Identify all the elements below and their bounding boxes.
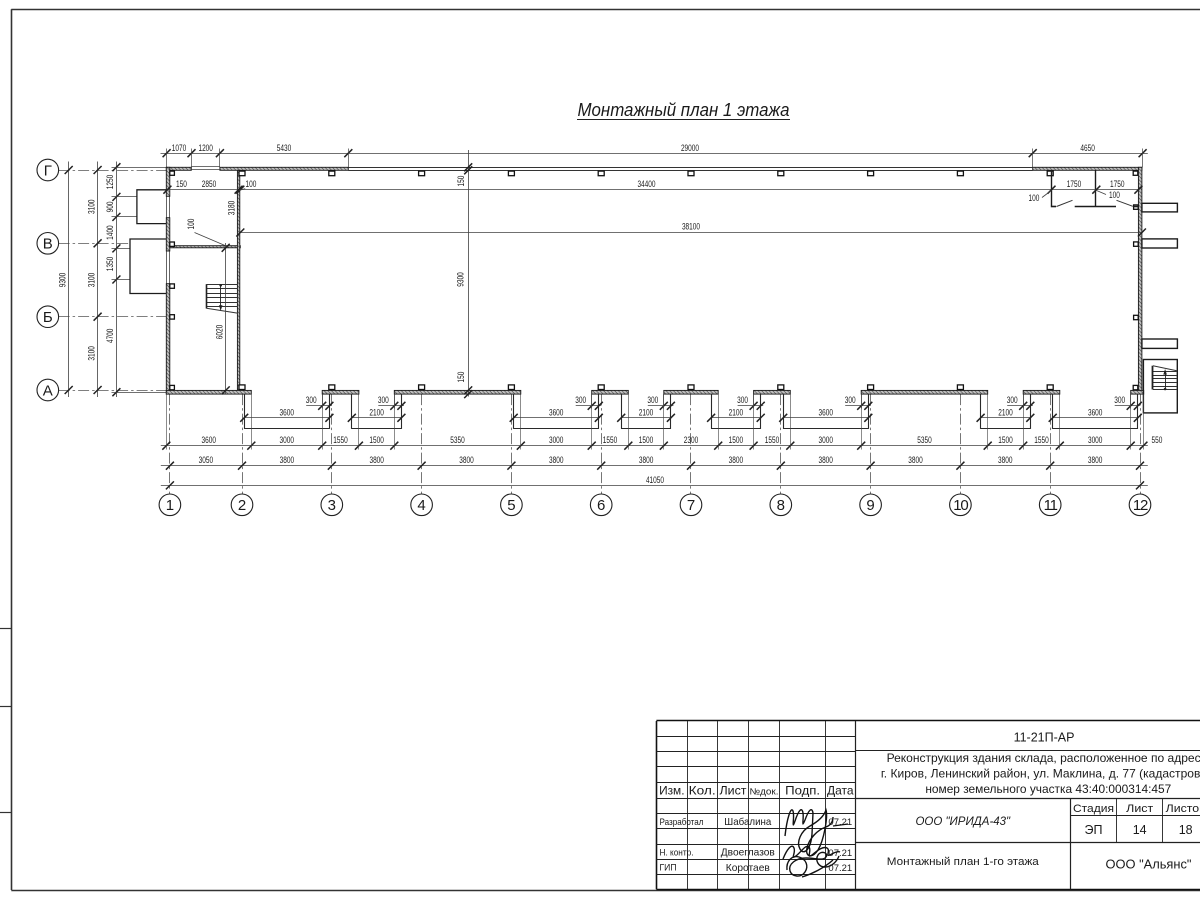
svg-text:3600: 3600 [1088, 407, 1103, 417]
svg-text:2: 2 [238, 497, 246, 514]
svg-text:29000: 29000 [681, 143, 699, 153]
svg-text:2300: 2300 [684, 435, 699, 445]
svg-text:5350: 5350 [917, 435, 932, 445]
svg-text:г. Киров, Ленинский район, ул.: г. Киров, Ленинский район, ул. Маклина, … [881, 767, 1200, 781]
svg-text:2100: 2100 [369, 407, 384, 417]
svg-text:11: 11 [1044, 497, 1058, 514]
svg-text:300: 300 [378, 395, 389, 405]
svg-text:3: 3 [328, 497, 336, 514]
svg-text:3600: 3600 [549, 407, 564, 417]
svg-text:Н. контр.: Н. контр. [660, 847, 694, 857]
svg-text:Лист: Лист [720, 783, 748, 797]
svg-text:2850: 2850 [202, 179, 217, 189]
svg-text:Подп.: Подп. [785, 783, 820, 797]
svg-text:4700: 4700 [105, 329, 115, 344]
svg-text:3800: 3800 [459, 455, 474, 465]
svg-text:1750: 1750 [1067, 179, 1082, 189]
svg-text:В: В [43, 236, 53, 253]
svg-text:Кол.: Кол. [689, 783, 716, 797]
svg-text:3600: 3600 [819, 407, 834, 417]
svg-text:Двоеглазов: Двоеглазов [721, 847, 775, 859]
svg-text:1350: 1350 [105, 257, 115, 272]
svg-text:300: 300 [845, 395, 856, 405]
svg-text:ГИП: ГИП [660, 863, 677, 873]
svg-text:Лист: Лист [1126, 803, 1153, 815]
svg-text:41050: 41050 [646, 475, 664, 485]
svg-text:1500: 1500 [729, 435, 744, 445]
svg-text:300: 300 [647, 395, 658, 405]
svg-text:12: 12 [1133, 497, 1148, 514]
svg-text:3050: 3050 [199, 455, 214, 465]
svg-text:100: 100 [186, 219, 196, 230]
svg-text:3800: 3800 [908, 455, 923, 465]
svg-text:1500: 1500 [369, 435, 384, 445]
svg-text:3800: 3800 [639, 455, 654, 465]
svg-text:Коротаев: Коротаев [726, 862, 770, 874]
svg-text:150: 150 [176, 179, 187, 189]
svg-text:100: 100 [1109, 190, 1120, 200]
svg-text:1500: 1500 [639, 435, 654, 445]
svg-text:1550: 1550 [765, 435, 780, 445]
svg-text:Стадия: Стадия [1073, 803, 1114, 815]
svg-text:3800: 3800 [280, 455, 295, 465]
svg-text:4650: 4650 [1080, 143, 1095, 153]
svg-text:5: 5 [507, 497, 515, 514]
svg-text:Монтажный план 1-го этажа: Монтажный план 1-го этажа [887, 856, 1040, 868]
svg-text:300: 300 [1114, 395, 1125, 405]
svg-text:300: 300 [306, 395, 317, 405]
svg-text:10: 10 [953, 497, 968, 514]
svg-text:18: 18 [1179, 823, 1193, 837]
svg-text:1: 1 [166, 497, 174, 514]
svg-text:6: 6 [597, 497, 605, 514]
svg-text:2100: 2100 [729, 407, 744, 417]
svg-text:1550: 1550 [603, 435, 618, 445]
svg-text:9300: 9300 [58, 273, 68, 288]
svg-text:2100: 2100 [998, 407, 1013, 417]
svg-text:3000: 3000 [1088, 435, 1103, 445]
svg-text:5350: 5350 [450, 435, 465, 445]
svg-text:3100: 3100 [86, 346, 96, 361]
svg-text:3600: 3600 [202, 435, 217, 445]
svg-text:34400: 34400 [637, 179, 655, 189]
svg-text:900: 900 [105, 201, 115, 212]
svg-text:Листов: Листов [1166, 803, 1200, 815]
svg-text:9: 9 [866, 497, 874, 514]
svg-text:1070: 1070 [172, 143, 187, 153]
svg-text:100: 100 [246, 179, 257, 189]
svg-text:3180: 3180 [227, 201, 237, 216]
svg-text:ООО "ИРИДА-43": ООО "ИРИДА-43" [915, 816, 1011, 828]
svg-text:Монтажный план 1 этажа: Монтажный план 1 этажа [578, 100, 790, 120]
svg-text:8: 8 [777, 497, 785, 514]
svg-text:1550: 1550 [1034, 435, 1049, 445]
svg-text:Разработал: Разработал [660, 817, 704, 827]
svg-text:1400: 1400 [105, 225, 115, 240]
svg-text:100: 100 [1029, 193, 1040, 203]
svg-text:1250: 1250 [105, 175, 115, 190]
svg-text:6020: 6020 [214, 325, 224, 340]
svg-text:150: 150 [456, 176, 466, 187]
svg-text:550: 550 [1151, 435, 1162, 445]
svg-text:4: 4 [417, 497, 425, 514]
svg-text:3100: 3100 [86, 199, 96, 214]
svg-text:Изм.: Изм. [659, 783, 684, 797]
svg-text:3000: 3000 [819, 435, 834, 445]
svg-text:№док.: №док. [750, 786, 779, 796]
svg-text:номер земельного участка 43:40: номер земельного участка 43:40:000314:45… [925, 782, 1171, 796]
svg-text:150: 150 [456, 372, 466, 383]
svg-text:1750: 1750 [1110, 179, 1125, 189]
svg-text:300: 300 [575, 395, 586, 405]
svg-text:А: А [43, 382, 53, 399]
svg-text:3800: 3800 [1088, 455, 1103, 465]
svg-text:3800: 3800 [369, 455, 384, 465]
svg-text:ЭП: ЭП [1085, 823, 1103, 837]
svg-text:5430: 5430 [277, 143, 292, 153]
svg-text:3800: 3800 [549, 455, 564, 465]
svg-text:3100: 3100 [86, 273, 96, 288]
svg-text:14: 14 [1133, 823, 1147, 837]
svg-text:3000: 3000 [549, 435, 564, 445]
svg-text:3800: 3800 [729, 455, 744, 465]
svg-text:2100: 2100 [639, 407, 654, 417]
svg-text:3800: 3800 [998, 455, 1013, 465]
svg-text:Г: Г [44, 162, 52, 179]
svg-text:300: 300 [737, 395, 748, 405]
svg-text:38100: 38100 [682, 222, 700, 232]
svg-text:Реконструкция здания склада, р: Реконструкция здания склада, расположенн… [887, 751, 1200, 765]
svg-text:1200: 1200 [198, 143, 213, 153]
svg-text:Дата: Дата [827, 783, 854, 797]
svg-text:3000: 3000 [280, 435, 295, 445]
svg-text:3600: 3600 [280, 407, 295, 417]
svg-text:Шабалина: Шабалина [724, 816, 771, 828]
svg-text:ООО "Альянс": ООО "Альянс" [1106, 857, 1192, 871]
svg-text:11-21П-АР: 11-21П-АР [1014, 731, 1075, 745]
svg-text:Б: Б [43, 309, 53, 326]
svg-text:9300: 9300 [456, 272, 466, 287]
svg-text:7: 7 [687, 497, 695, 514]
svg-text:300: 300 [1007, 395, 1018, 405]
svg-text:1500: 1500 [998, 435, 1013, 445]
svg-text:1550: 1550 [333, 435, 348, 445]
svg-text:3800: 3800 [818, 455, 833, 465]
